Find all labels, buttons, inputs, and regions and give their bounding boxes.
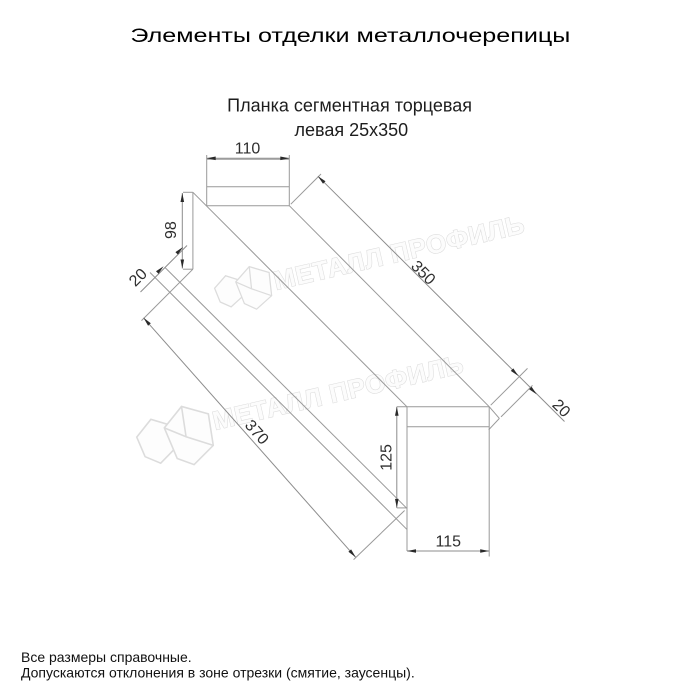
svg-text:Элементы отделки металлочерепи: Элементы отделки металлочерепицы xyxy=(130,26,570,47)
svg-text:Планка сегментная торцевая: Планка сегментная торцевая xyxy=(227,96,472,116)
svg-text:левая 25х350: левая 25х350 xyxy=(294,120,408,140)
svg-text:115: 115 xyxy=(436,533,462,550)
svg-text:20: 20 xyxy=(126,266,151,291)
svg-text:110: 110 xyxy=(235,141,261,158)
svg-text:Допускаются отклонения в зоне: Допускаются отклонения в зоне отрезки (с… xyxy=(21,665,415,681)
svg-text:20: 20 xyxy=(548,396,573,421)
svg-text:125: 125 xyxy=(378,444,395,471)
svg-text:98: 98 xyxy=(163,221,180,239)
svg-text:Все размеры справочные.: Все размеры справочные. xyxy=(21,649,192,665)
svg-text:МЕТАЛЛ ПРОФИЛЬ: МЕТАЛЛ ПРОФИЛЬ xyxy=(271,209,528,296)
